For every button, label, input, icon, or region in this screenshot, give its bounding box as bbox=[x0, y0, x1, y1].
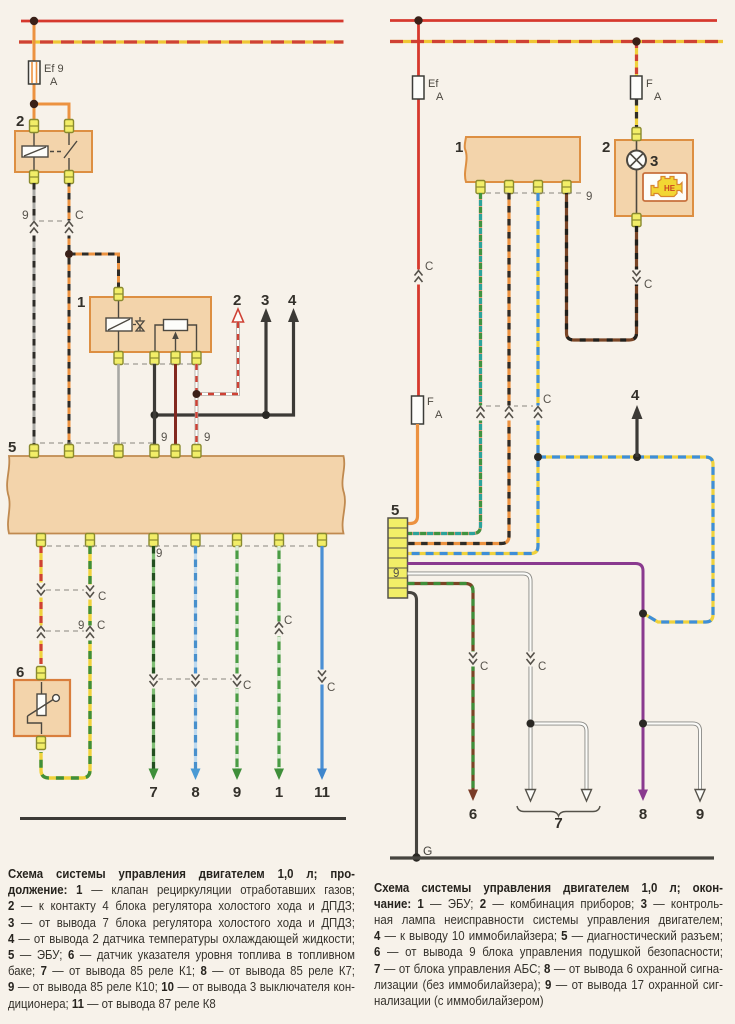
svg-text:4: 4 bbox=[631, 387, 640, 404]
svg-text:7: 7 bbox=[554, 815, 562, 832]
svg-text:9: 9 bbox=[156, 548, 162, 560]
svg-text:7: 7 bbox=[149, 784, 157, 801]
svg-text:1: 1 bbox=[77, 294, 85, 311]
svg-text:C: C bbox=[644, 279, 652, 291]
svg-text:3: 3 bbox=[650, 153, 658, 170]
svg-text:9: 9 bbox=[22, 208, 29, 222]
svg-text:1: 1 bbox=[275, 784, 283, 801]
svg-text:C: C bbox=[98, 591, 106, 603]
svg-text:2: 2 bbox=[233, 292, 241, 309]
svg-text:C: C bbox=[538, 661, 546, 673]
svg-text:11: 11 bbox=[314, 784, 330, 801]
svg-text:9: 9 bbox=[696, 806, 704, 823]
svg-text:5: 5 bbox=[8, 439, 16, 456]
svg-text:A: A bbox=[50, 76, 58, 88]
svg-text:F: F bbox=[646, 78, 653, 90]
svg-text:9: 9 bbox=[393, 568, 399, 580]
svg-text:C: C bbox=[243, 680, 251, 692]
svg-text:A: A bbox=[436, 91, 444, 103]
svg-text:Ef 9: Ef 9 bbox=[44, 63, 64, 75]
svg-text:4: 4 bbox=[288, 292, 297, 309]
svg-text:C: C bbox=[543, 394, 551, 406]
svg-text:3: 3 bbox=[261, 292, 269, 309]
svg-text:2: 2 bbox=[16, 113, 24, 130]
svg-text:F: F bbox=[427, 396, 434, 408]
svg-text:2: 2 bbox=[602, 139, 610, 156]
svg-text:9: 9 bbox=[204, 432, 210, 444]
svg-text:9: 9 bbox=[161, 432, 167, 444]
svg-text:9: 9 bbox=[233, 784, 241, 801]
svg-text:C: C bbox=[327, 682, 335, 694]
svg-text:HE: HE bbox=[664, 184, 676, 193]
svg-text:G: G bbox=[423, 844, 432, 858]
svg-text:6: 6 bbox=[469, 806, 477, 823]
svg-text:C: C bbox=[284, 615, 292, 627]
svg-text:Ef: Ef bbox=[428, 78, 439, 90]
svg-text:6: 6 bbox=[16, 664, 24, 681]
svg-text:C: C bbox=[75, 208, 84, 222]
svg-text:9: 9 bbox=[586, 191, 592, 203]
svg-text:5: 5 bbox=[391, 502, 399, 519]
svg-text:1: 1 bbox=[455, 139, 463, 156]
svg-text:A: A bbox=[435, 409, 443, 421]
svg-text:9: 9 bbox=[78, 620, 84, 632]
svg-text:C: C bbox=[97, 620, 105, 632]
svg-text:8: 8 bbox=[639, 806, 647, 823]
svg-text:A: A bbox=[654, 91, 662, 103]
svg-text:8: 8 bbox=[191, 784, 199, 801]
svg-text:C: C bbox=[425, 261, 433, 273]
svg-text:C: C bbox=[480, 661, 488, 673]
